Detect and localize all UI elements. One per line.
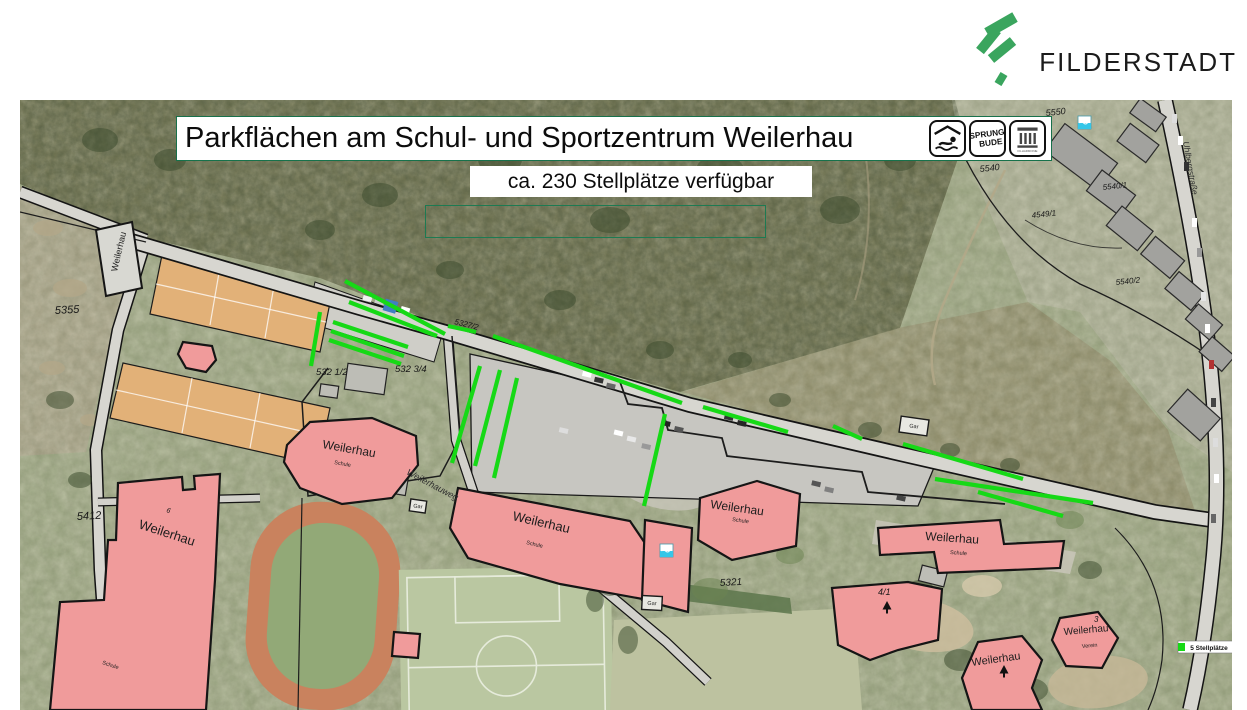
filderstadt-logo-mark-icon xyxy=(971,10,1029,86)
facility-icons: SPRUNG BUDE FILHARMONIE xyxy=(929,120,1046,157)
parcel-number: 532 1/2 xyxy=(316,367,348,378)
parcel-number: 532 3/4 xyxy=(395,364,427,375)
building-sublabel: Schule xyxy=(950,550,967,557)
highlight-frame xyxy=(425,205,766,238)
parcel-number: 5321 xyxy=(720,577,743,589)
filderstadt-logo: FILDERSTADT xyxy=(971,10,1239,86)
parcel-number: 3 xyxy=(1094,615,1099,624)
pool-icon xyxy=(660,544,673,557)
stellplatz-badge-label: 5 Stellplätze xyxy=(1190,645,1228,652)
garage-box: Gar xyxy=(409,499,427,513)
parcel-number: 4/1 xyxy=(878,587,891,597)
map-title-box: Parkflächen am Schul- und Sportzentrum W… xyxy=(176,116,1052,161)
map: GarGarGar 53555412532 1/2532 3/45327/253… xyxy=(20,100,1232,710)
map-title: Parkflächen am Schul- und Sportzentrum W… xyxy=(185,122,929,155)
stellplatz-badge: 5 Stellplätze xyxy=(1178,641,1232,653)
sprungbude-icon: SPRUNG BUDE xyxy=(969,120,1006,157)
garage-box: Gar xyxy=(642,595,663,610)
map-subtitle: ca. 230 Stellplätze verfügbar xyxy=(470,166,812,197)
pool-icon xyxy=(1078,116,1091,129)
svg-text:BUDE: BUDE xyxy=(979,137,1004,149)
parcel-number: 5540 xyxy=(979,162,1000,174)
garage-box: Gar xyxy=(899,416,929,436)
running-track xyxy=(241,497,405,710)
swimming-pool-icon xyxy=(929,120,966,157)
svg-text:FILHARMONIE: FILHARMONIE xyxy=(1018,149,1038,153)
filharmonie-icon: FILHARMONIE xyxy=(1009,120,1046,157)
parcel-number: 5355 xyxy=(55,304,81,317)
brand-name: FILDERSTADT xyxy=(1039,47,1237,78)
flyer-page: FILDERSTADT xyxy=(0,0,1247,710)
garage-label: Gar xyxy=(647,601,657,607)
parcel-number: 5412 xyxy=(77,510,102,523)
